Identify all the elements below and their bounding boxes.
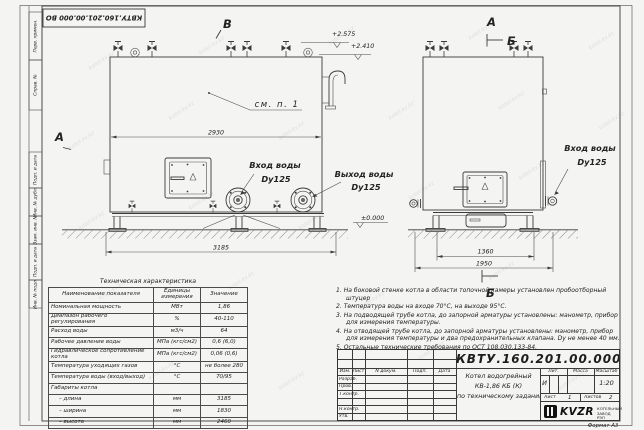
cell: 3185 [201, 395, 248, 406]
company-line2: ЗАВОД РЭП [597, 412, 619, 421]
cell: 0,6 (6,0) [201, 337, 248, 348]
front-door [165, 158, 211, 198]
table-row: – длинамм3185 [49, 395, 248, 406]
side-door [454, 172, 507, 207]
svg-text:kotel-kv.kz: kotel-kv.kz [78, 211, 106, 232]
mass-header: Масса [567, 369, 594, 374]
technical-notes: 1. На боковой стенке котла в области топ… [336, 287, 620, 352]
description-line1: Котел водогрейный [457, 372, 540, 382]
side-view: А Б [408, 15, 616, 300]
table-row: – ширинамм1830 [49, 406, 248, 417]
scale-value: 1:20 [594, 379, 619, 387]
margin-label: Подп. и дата [33, 247, 39, 277]
front-supports [109, 214, 326, 232]
gauge-elbow [322, 71, 345, 109]
cell: Габариты котла [49, 384, 154, 395]
table-row: – высотамм2460 [49, 417, 248, 428]
cell: °С [154, 372, 201, 383]
inlet-size: Dy125 [261, 174, 291, 184]
sheets-value: 2 [609, 395, 618, 401]
table-row: Гидравлическое сопротивление котлаМПа (к… [49, 349, 248, 362]
outlet-label: Выход воды [335, 169, 394, 179]
cell: 64 [201, 326, 248, 337]
cell: мм [154, 417, 201, 428]
col-podp: Подп. [407, 369, 433, 374]
row-prov: Пров. [339, 384, 365, 389]
cell: 70/95 [201, 372, 248, 383]
cell: – длина [49, 395, 154, 406]
cell: 1,86 [201, 303, 248, 314]
cell [154, 384, 201, 395]
table-row: Расход водым3/ч64 [49, 326, 248, 337]
top-stamp-text: КВТУ.160.201.00.000 ВО [46, 14, 143, 22]
section-label-b-top: Б [507, 34, 516, 48]
front-view: В см. п. 1 2930 [54, 17, 394, 256]
svg-text:kotel-kv.kz: kotel-kv.kz [498, 91, 526, 112]
inlet-flange [226, 188, 250, 212]
lit-header: Лит. [540, 369, 567, 374]
view-label-v: В [223, 17, 232, 31]
svg-text:kotel-kv.kz: kotel-kv.kz [168, 101, 196, 122]
table-row: Габариты котла [49, 384, 248, 395]
cell: мм [154, 406, 201, 417]
kvzr-logo-text: KVZR [560, 406, 596, 418]
col-izm: Изм. [338, 369, 352, 374]
cell: 2460 [201, 417, 248, 428]
cell: – ширина [49, 406, 154, 417]
row-utv: Утв. [339, 414, 365, 419]
spec-header-units: Единицы измерения [154, 288, 201, 303]
svg-text:kotel-kv.kz: kotel-kv.kz [198, 36, 226, 57]
svg-text:kotel-kv.kz: kotel-kv.kz [68, 131, 96, 152]
table-row: Температура воды (вход/выход)°С70/95 [49, 372, 248, 383]
margin-label: Инв. № дубл. [33, 187, 39, 217]
cell: 1830 [201, 406, 248, 417]
cell: мм [154, 395, 201, 406]
cell: не более 280 [201, 361, 248, 372]
outlet-size: Dy125 [351, 182, 381, 192]
description-line3: по техническому заданию [457, 392, 540, 402]
view-label-a-side: А [486, 15, 496, 29]
sheet-label: Лист [544, 395, 562, 400]
cell: Расход воды [49, 326, 154, 337]
row-razrab: Разраб. [339, 377, 365, 382]
note-4: 4. На отводящей трубе котла, до запорной… [336, 328, 620, 343]
sheets-label: Листов [584, 395, 606, 400]
spec-header-value: Значение [201, 288, 248, 303]
side-inlet-label: Вход воды [564, 143, 616, 153]
lit-value: И [540, 379, 549, 387]
col-ndoc: N докум. [365, 369, 407, 374]
svg-text:kotel-kv.kz: kotel-kv.kz [278, 371, 306, 392]
description-line2: КВ-1,86 КБ (К) [457, 382, 540, 392]
margin-column: Перв. примен. Справ. № Подп. и дата Инв.… [29, 12, 42, 309]
dim-3185: 3185 [213, 245, 229, 252]
svg-text:kotel-kv.kz: kotel-kv.kz [408, 181, 436, 202]
dim-2930: 2930 [208, 130, 224, 137]
outlet-flange [291, 188, 315, 212]
format-label: Формат А3 [566, 423, 640, 429]
cell: % [154, 314, 201, 327]
cell: м3/ч [154, 326, 201, 337]
scale-header: Масштаб [594, 369, 619, 374]
spec-table: Техническая характеристика Наименование … [48, 278, 248, 429]
spec-header-name: Наименование показателя [49, 288, 154, 303]
note-2: 2. Температура воды на входе 70°С, на вы… [336, 303, 620, 311]
side-inlet-nozzle [546, 196, 557, 206]
table-row: Диапазон рабочего регулирования%40-110 [49, 314, 248, 327]
table-row: Температура уходящих газов°Сне более 280 [49, 361, 248, 372]
cell: МВт [154, 303, 201, 314]
sheet-value: 1 [568, 395, 578, 401]
svg-text:kotel-kv.kz: kotel-kv.kz [488, 261, 516, 282]
col-list: Лист [352, 369, 365, 374]
callout-see-note: см. п. 1 [255, 100, 300, 110]
table-row: Рабочее давление водыМПа (кгс/см2)0,6 (6… [49, 337, 248, 348]
cell: МПа (кгс/см2) [154, 337, 201, 348]
side-drain-nozzle [410, 199, 421, 208]
dim-1360: 1360 [477, 249, 493, 256]
side-inlet-size: Dy125 [577, 157, 607, 167]
margin-label: Перв. примен. [33, 20, 39, 53]
cell: – высота [49, 417, 154, 428]
inlet-label: Вход воды [249, 160, 301, 170]
cell: Номинальная мощность [49, 303, 154, 314]
col-data: Дата [433, 369, 456, 374]
cell: °С [154, 361, 201, 372]
top-stamp: КВТУ.160.201.00.000 ВО [43, 9, 145, 27]
cell: Температура уходящих газов [49, 361, 154, 372]
margin-label: Справ. № [33, 74, 39, 96]
cell: Температура воды (вход/выход) [49, 372, 154, 383]
row-tkontr: Т.контр. [339, 392, 365, 397]
svg-text:kotel-kv.kz: kotel-kv.kz [388, 101, 416, 122]
row-nkontr: Н.контр. [339, 407, 365, 412]
elev-2410: +2.410 [351, 43, 374, 50]
margin-label: Инв. № подл. [33, 279, 39, 309]
svg-text:kotel-kv.kz: kotel-kv.kz [518, 161, 546, 182]
kvzr-emblem-icon [544, 405, 557, 418]
margin-label: Подп. и дата [33, 155, 39, 185]
cell [201, 384, 248, 395]
title-block: КВТУ.160.201.00.000 ВО Изм. Лист N докум… [337, 349, 620, 421]
spec-header-row: Наименование показателя Единицы измерени… [49, 288, 248, 303]
note-3: 3. На подводящей трубе котла, до запорно… [336, 312, 620, 327]
spec-table-title: Техническая характеристика [48, 278, 248, 285]
elevation-marks: +2.575 +2.410 ±0.000 [301, 31, 388, 228]
table-row: Номинальная мощностьМВт1,86 [49, 303, 248, 314]
svg-text:kotel-kv.kz: kotel-kv.kz [278, 121, 306, 142]
svg-text:kotel-kv.kz: kotel-kv.kz [598, 111, 626, 132]
elev-0000: ±0.000 [361, 215, 384, 222]
dim-1950: 1950 [476, 261, 492, 268]
cell: Диапазон рабочего регулирования [49, 314, 154, 327]
side-supports [426, 213, 539, 232]
drawing-sheet: kotel-kv.kz kotel-kv.kz kotel-kv.kz kote… [0, 0, 644, 430]
cell: Рабочее давление воды [49, 337, 154, 348]
cell: МПа (кгс/см2) [154, 349, 201, 362]
designation: КВТУ.160.201.00.000 ВО [456, 350, 619, 368]
cell: 40-110 [201, 314, 248, 327]
view-label-a-front: А [54, 130, 64, 144]
cell: 0,06 (0,6) [201, 349, 248, 362]
cell: Гидравлическое сопротивление котла [49, 349, 154, 362]
elev-2575: +2.575 [332, 31, 355, 38]
svg-text:kotel-kv.kz: kotel-kv.kz [88, 51, 116, 72]
svg-text:kotel-kv.kz: kotel-kv.kz [588, 31, 616, 52]
margin-label: Взам. инв. № [33, 215, 39, 245]
note-1: 1. На боковой стенке котла в области топ… [336, 287, 620, 302]
